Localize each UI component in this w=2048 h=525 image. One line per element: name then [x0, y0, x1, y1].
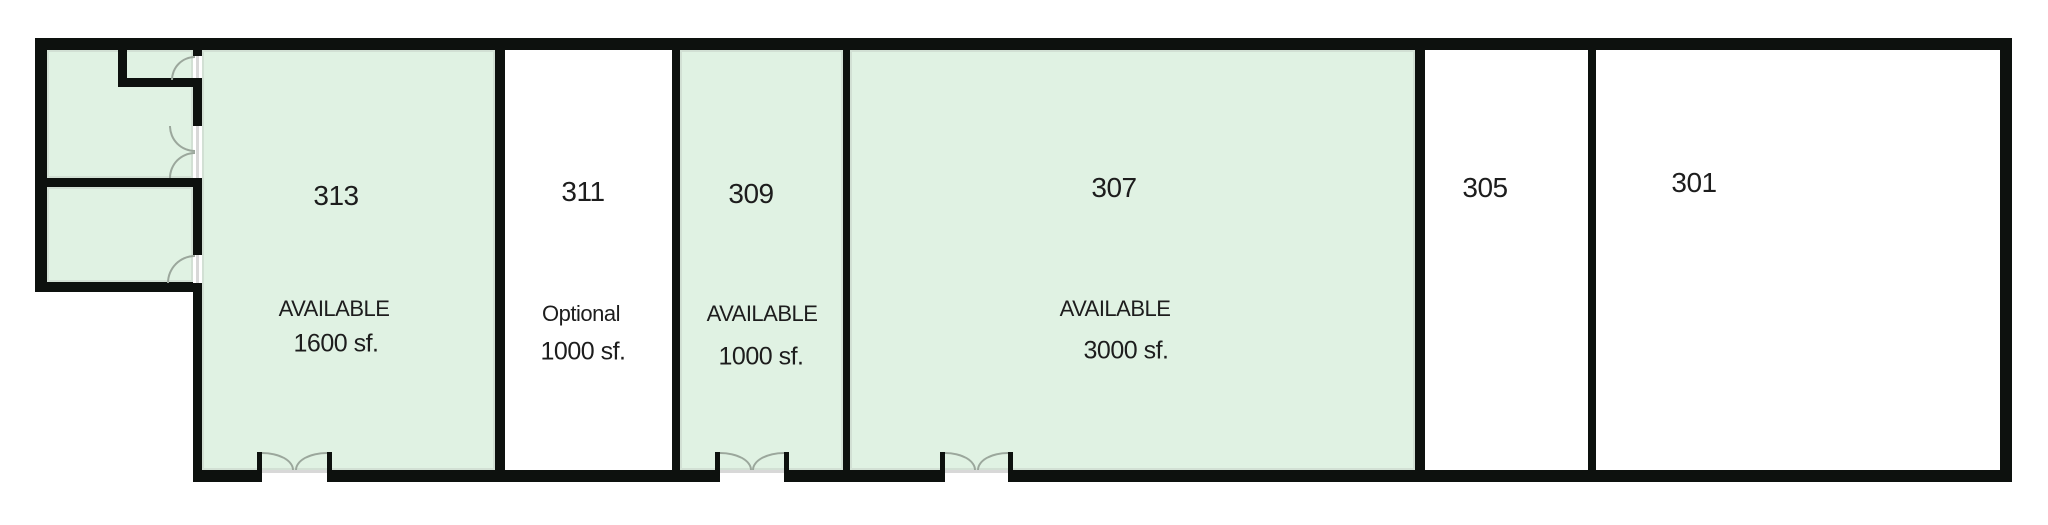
room-311-number: 311 [561, 176, 604, 208]
wall-311-309 [672, 38, 680, 482]
room-309-number: 309 [728, 178, 773, 210]
room-313-size: 1600 sf. [294, 330, 379, 359]
door-threshold-309 [715, 470, 789, 473]
wall-annex-313-seg3 [193, 178, 202, 255]
room-311-fill [505, 50, 672, 470]
room-307-number: 307 [1091, 172, 1136, 204]
door-stub-309-right [784, 452, 789, 482]
door-threshold-annex-lower-room [196, 255, 199, 283]
room-307-fill [850, 50, 1415, 470]
room-309-fill [680, 50, 843, 470]
room-301-fill [1596, 50, 2002, 470]
door-threshold-nook [196, 56, 199, 78]
door-threshold-annex-double [196, 126, 199, 178]
room-313-fill [202, 50, 495, 470]
door-stub-307-right [1008, 452, 1013, 482]
room-313-status: AVAILABLE [279, 296, 390, 322]
wall-305-301 [1588, 38, 1596, 482]
wall-annex-313-seg1 [193, 38, 202, 56]
room-313-number: 313 [313, 180, 358, 212]
door-threshold-313 [257, 470, 332, 473]
wall-annex-313-seg2 [193, 78, 202, 126]
door-stub-313-right [327, 452, 332, 482]
wall-annex-313-seg4 [193, 283, 202, 482]
room-311-status: Optional [542, 301, 620, 327]
room-307-size: 3000 sf. [1084, 337, 1169, 366]
wall-313-311 [495, 38, 505, 482]
wall-annex-divider [47, 178, 193, 187]
wall-309-307 [843, 38, 850, 482]
room-305-fill [1425, 50, 1588, 470]
room-305-number: 305 [1462, 172, 1507, 204]
wall-right [2000, 38, 2012, 482]
door-threshold-307 [940, 470, 1013, 473]
room-301-number: 301 [1671, 167, 1716, 199]
room-309-status: AVAILABLE [707, 301, 818, 327]
wall-top [35, 38, 2012, 50]
room-311-size: 1000 sf. [541, 338, 626, 367]
wall-left [35, 38, 47, 292]
wall-307-305 [1415, 38, 1425, 482]
floor-plan-canvas: 313 AVAILABLE 1600 sf. 311 Optional 1000… [0, 0, 2048, 525]
room-307-status: AVAILABLE [1060, 296, 1171, 322]
wall-annex-bottom [35, 282, 202, 292]
wall-bottom [193, 470, 2012, 482]
room-309-size: 1000 sf. [719, 343, 804, 372]
